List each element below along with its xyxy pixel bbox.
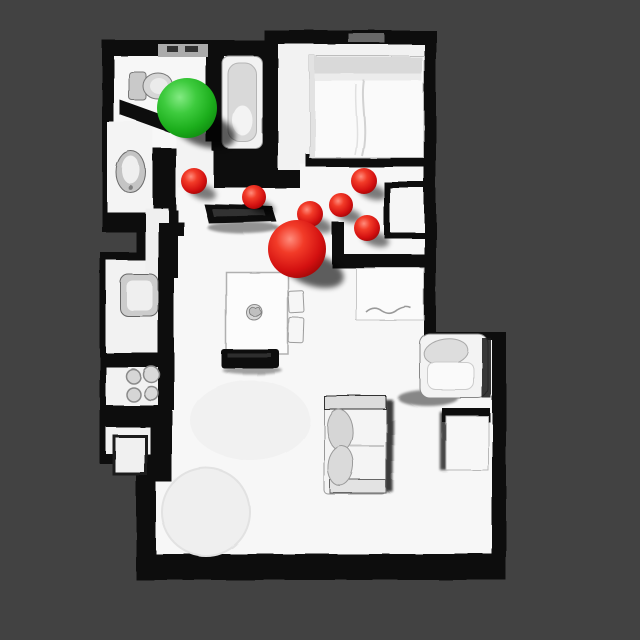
sink-drain	[129, 186, 134, 191]
red-sphere-marker-1	[181, 168, 207, 194]
bench-body	[221, 349, 279, 368]
bathroom-sink	[116, 151, 146, 193]
bed-pillows	[312, 57, 422, 74]
kitchen-right-wall	[158, 250, 174, 410]
bench	[221, 349, 282, 374]
couch	[324, 396, 393, 494]
couch-armrest-top	[324, 396, 386, 409]
burner-3	[126, 387, 140, 401]
red-sphere-marker-5	[351, 168, 377, 194]
bed-side	[310, 56, 315, 158]
kitchen-sink-basin	[126, 280, 152, 310]
burner-2	[143, 366, 159, 382]
floor-shading	[190, 380, 310, 460]
rug	[162, 468, 250, 556]
nightstand	[384, 182, 430, 238]
nightstand-top	[390, 188, 424, 232]
topdown-floorplan-render	[0, 0, 640, 640]
kitchen-divider-1	[106, 353, 158, 367]
chair-1	[288, 291, 304, 314]
side-table-top	[446, 416, 488, 470]
red-sphere-marker-6	[354, 215, 380, 241]
red-sphere-marker-2	[242, 185, 266, 209]
shelf-recess	[158, 44, 208, 57]
green-sphere-marker	[157, 78, 217, 138]
burner-1	[126, 369, 140, 383]
kitchen-divider-2	[106, 405, 158, 427]
armchair-seat	[428, 362, 474, 390]
bed-fold	[312, 74, 422, 81]
red-sphere-marker-4	[329, 193, 353, 217]
console-shadow	[208, 222, 280, 234]
dining-table	[226, 272, 288, 354]
burner-4	[144, 386, 158, 400]
chair-2	[289, 318, 305, 344]
side-table	[440, 408, 490, 470]
bathtub-floor	[232, 105, 252, 135]
appliance-box	[114, 436, 146, 474]
red-sphere-marker-large	[268, 220, 326, 278]
armchair-wall-shadow	[482, 338, 491, 398]
shelf-item-1	[167, 46, 178, 52]
bench-highlight	[227, 353, 271, 357]
sink-bowl	[122, 156, 140, 184]
desk-back-edge	[332, 254, 436, 268]
bedroom-wall-notch	[348, 33, 384, 42]
desk	[356, 268, 424, 320]
kitchen-sink	[120, 274, 158, 316]
shelf-item-2	[185, 46, 198, 52]
bed	[310, 56, 424, 158]
scene-viewport[interactable]	[0, 0, 640, 640]
